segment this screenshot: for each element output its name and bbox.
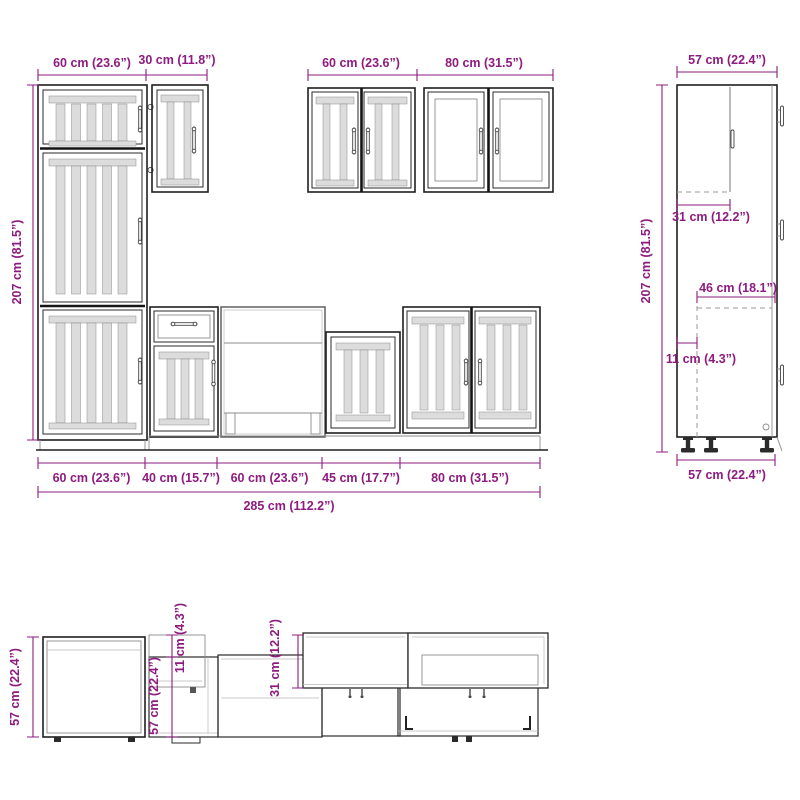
wall-cabinet-80-plan (408, 633, 548, 698)
dim-label-plinth-recess: 11 cm (4.3”) (666, 352, 736, 366)
wall-cabinet-60-front (308, 88, 415, 192)
side-view: 57 cm (22.4”) 207 cm (81.5”) 31 cm (12.2… (639, 53, 784, 482)
wall-cabinet-80-front (424, 88, 553, 192)
middle-door-slats (56, 166, 127, 294)
dim-label-base80: 80 cm (31.5”) (431, 471, 509, 485)
door-handle (366, 128, 370, 154)
door-handle (138, 218, 142, 244)
cabinet-leg (226, 413, 235, 434)
kitchen-cabinet-dimension-diagram: 60 cm (23.6”) 30 cm (11.8”) 60 cm (23.6”… (0, 0, 800, 800)
dim-label-side-height: 207 cm (81.5”) (639, 219, 653, 304)
plan-view: 57 cm (22.4”) 11 cm (4.3”) 57 cm (22.4”)… (8, 603, 548, 743)
dim-label-wall-depth: 31 cm (12.2”) (268, 619, 282, 697)
corner-bracket (406, 716, 530, 729)
tall-cabinet-front (38, 85, 153, 440)
dim-label-base40: 40 cm (15.7”) (142, 471, 220, 485)
door-handle (138, 106, 142, 132)
door-handle (479, 128, 483, 154)
base-cabinet-45-front (326, 332, 400, 433)
adjustable-foot (681, 437, 695, 453)
front-view: 60 cm (23.6”) 30 cm (11.8”) 60 cm (23.6”… (10, 53, 553, 513)
door-handle (464, 359, 468, 385)
dim-label-base60: 60 cm (23.6”) (53, 471, 131, 485)
door-handle-side (731, 130, 734, 148)
upper-door-slats (56, 104, 127, 141)
foot-mark (128, 737, 135, 742)
dim-label-side-bottom: 57 cm (22.4”) (688, 468, 766, 482)
base-cabinet-40-front (150, 307, 218, 437)
handle-profile-icon (777, 365, 784, 385)
diagram-canvas: 60 cm (23.6”) 30 cm (11.8”) 60 cm (23.6”… (0, 0, 800, 800)
plinth-and-floor (36, 436, 548, 450)
door-handle (495, 128, 499, 154)
bracket-mark (190, 687, 196, 693)
dim-label-wall-offset: 11 cm (4.3”) (173, 603, 187, 673)
drawer-handle (171, 322, 197, 326)
dim-label-wall30-width: 30 cm (11.8”) (138, 53, 215, 67)
hinge-mark (469, 689, 472, 698)
adjustable-foot (760, 437, 774, 453)
door-handle (192, 127, 196, 153)
dim-label-wall80-width: 80 cm (31.5”) (445, 56, 523, 70)
door-handle (352, 128, 356, 154)
dim-label-side-top: 57 cm (22.4”) (688, 53, 766, 67)
door-handle (478, 359, 482, 385)
wall-cabinet-30-front (152, 85, 208, 192)
foot-mark (54, 737, 61, 742)
hinge-mark (349, 689, 352, 698)
cabinet-leg (311, 413, 320, 434)
wall-cabinet-60-plan (303, 633, 408, 698)
adjustable-foot (704, 437, 718, 453)
handle-profile-icon (777, 220, 784, 240)
lower-door-slats (56, 323, 127, 423)
dim-label-base60b: 60 cm (23.6”) (231, 471, 309, 485)
dim-label-upper-depth: 31 cm (12.2”) (672, 210, 750, 224)
plan-view-dimensions: 57 cm (22.4”) 11 cm (4.3”) 57 cm (22.4”)… (8, 603, 304, 737)
dim-label-tall-width: 60 cm (23.6”) (53, 56, 131, 70)
hinge-mark (483, 689, 486, 698)
base-cabinet-80-front (403, 307, 540, 433)
dim-label-base-depth: 57 cm (22.4”) (147, 657, 161, 735)
dim-label-tall-depth: 57 cm (22.4”) (8, 648, 22, 726)
dim-label-interior-width: 46 cm (18.1”) (699, 281, 777, 295)
tall-cabinet-plan (43, 637, 145, 742)
dim-label-base45: 45 cm (17.7”) (322, 471, 400, 485)
door-handle (138, 358, 142, 384)
handle-profile-icon (777, 106, 784, 126)
sink-cabinet-60-front (221, 307, 325, 437)
foot-mark (452, 736, 458, 742)
side-view-dimensions: 57 cm (22.4”) 207 cm (81.5”) 31 cm (12.2… (639, 53, 777, 482)
dim-label-total-width: 285 cm (112.2”) (243, 499, 334, 513)
hinge-mark (361, 689, 364, 698)
dim-label-height: 207 cm (81.5”) (10, 220, 24, 305)
foot-mark (466, 736, 472, 742)
cam-lock-icon (763, 424, 769, 430)
dim-label-wall60-width: 60 cm (23.6”) (322, 56, 400, 70)
door-handle (212, 360, 216, 386)
